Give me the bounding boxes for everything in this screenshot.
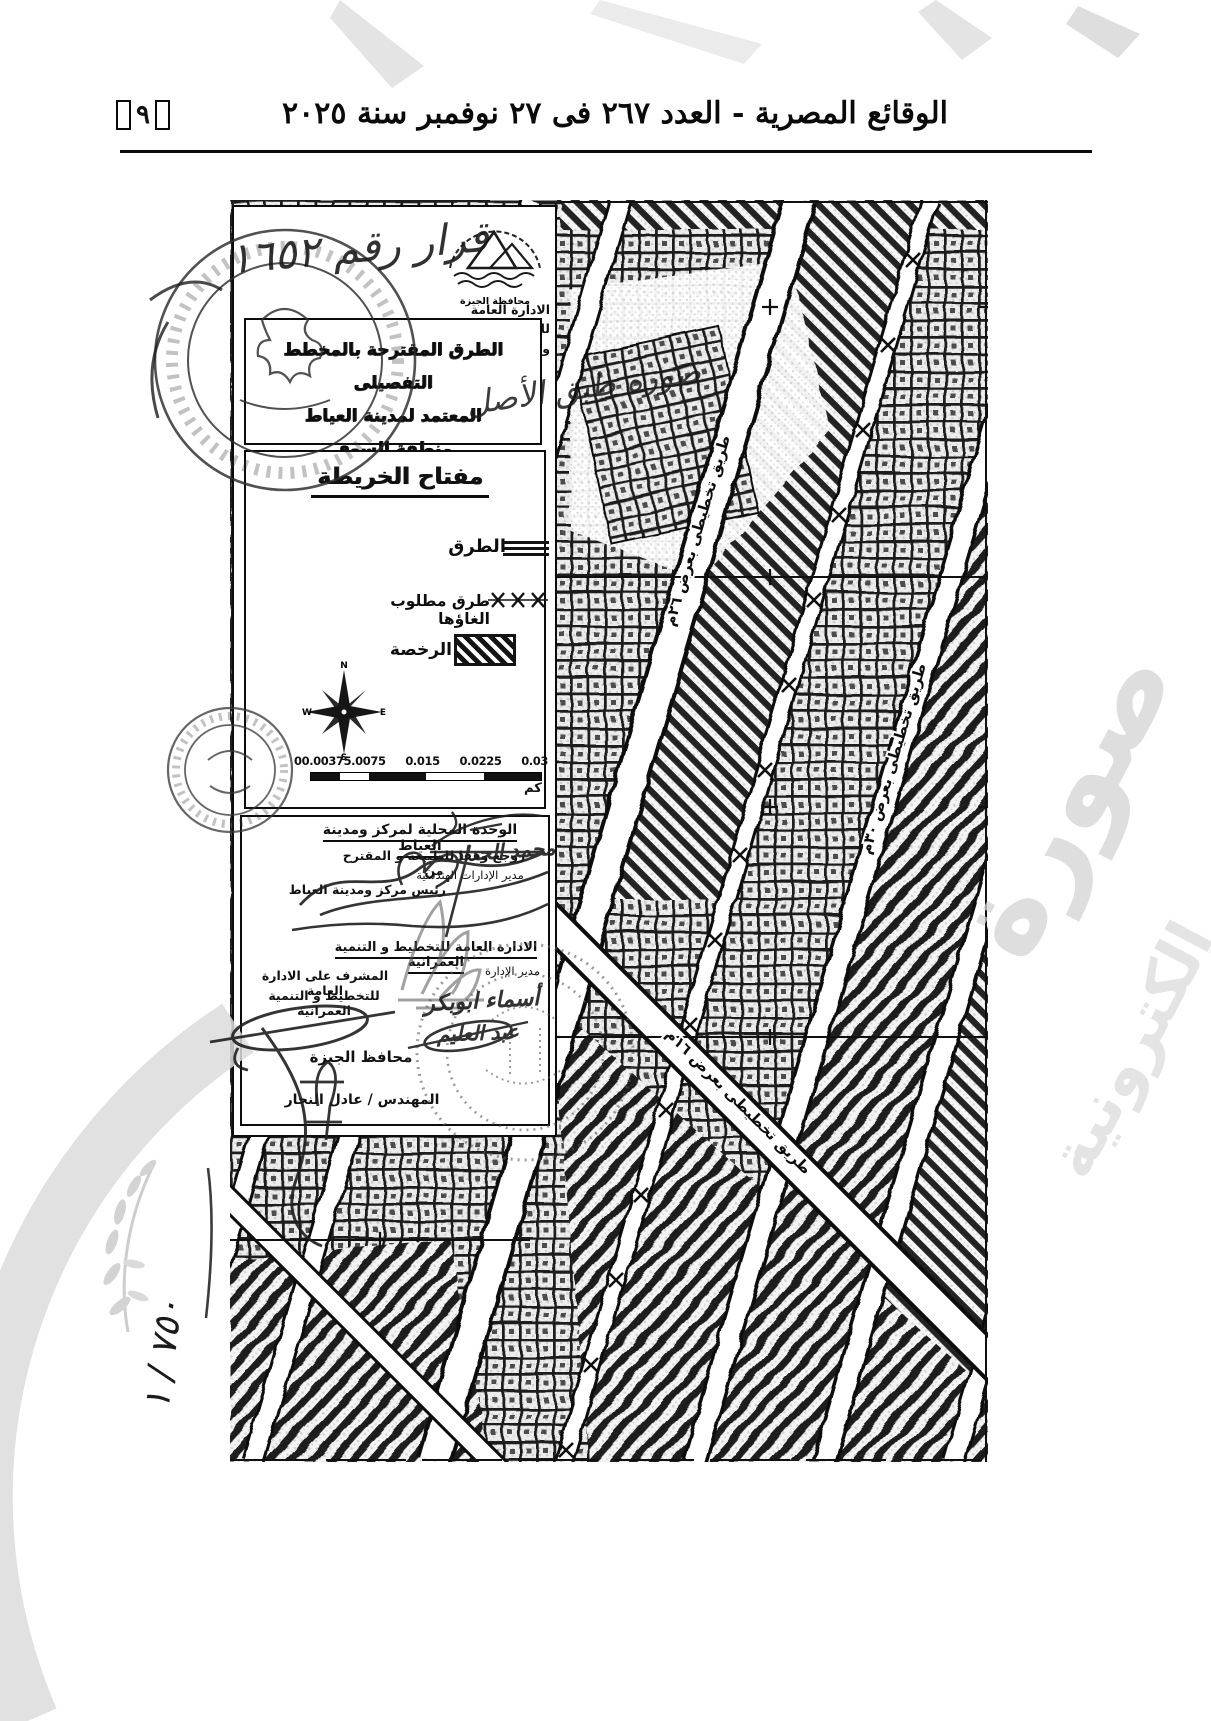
governor-name: المهندس / عادل النجار (278, 1092, 446, 1108)
ratio-handwriting: ٧٥٠ / ١ (137, 1168, 212, 1413)
watermark-arc (0, 1028, 238, 1720)
scale-label: 0.03 (521, 754, 548, 768)
tofu-box (116, 100, 131, 130)
scale-labels: 00.00375.0075 0.015 0.0225 0.03 (294, 754, 548, 768)
supervisor-line-2: للتخطيط و التنمية العمرانية (246, 988, 402, 1018)
plan-title-line-1: الطرق المقترحة بالمخطط التفصيلى (246, 334, 540, 400)
laurel-branch-icon (100, 1157, 158, 1332)
roads-symbol-icon (503, 538, 549, 559)
tofu-box (155, 100, 170, 130)
cancelled-roads-symbol-icon (486, 590, 550, 610)
svg-text:٧٥٠ / ١: ٧٥٠ / ١ (137, 1296, 191, 1413)
governor-title: محافظ الجيزة (296, 1048, 426, 1066)
map-key-title: مفتاح الخريطة (300, 464, 500, 490)
admin-director-title: مدير الإدارة (476, 964, 540, 978)
plan-title-box: الطرق المقترحة بالمخطط التفصيلى المعتمد … (244, 318, 542, 445)
scale-label: 0.015 (405, 754, 439, 768)
gazette-page: ٩ الوقائع المصرية - العدد ٢٦٧ فى ٢٧ نوفم… (0, 0, 1211, 1721)
compass-rose-icon: N E S W (300, 660, 388, 760)
key-license-label: الرخصة (402, 640, 452, 660)
scale-label: 00.00375.0075 (294, 754, 386, 768)
compass-e: E (380, 708, 386, 718)
head-of-city-title: رئيس مركز ومدينة العياط (286, 882, 446, 897)
watermark-text-fragment: إلكترونية (1034, 910, 1211, 1190)
license-symbol-icon (454, 634, 516, 666)
key-cancelled-label: طرق مطلوب الغاؤها (338, 592, 490, 628)
pen-stroke (150, 282, 222, 418)
key-roads-label: الطرق (452, 536, 506, 557)
gazette-header-title: الوقائع المصرية - العدد ٢٦٧ فى ٢٧ نوفمبر… (250, 96, 980, 131)
scale-label: 0.0225 (459, 754, 501, 768)
scale-bar (310, 772, 542, 781)
giza-governorate-logo-icon: محافظة الجيزة (438, 210, 552, 310)
page-number: ٩ (116, 100, 170, 130)
eng-director-title: مدير الإدارات الهندسية (408, 868, 532, 882)
plan-title-line-2: المعتمد لمدينة العياط (246, 400, 540, 433)
compass-n: N (340, 661, 348, 671)
scan-ghost-shapes (330, 0, 1140, 88)
page-number-value: ٩ (136, 100, 150, 130)
header-rule (120, 150, 1092, 153)
scale-unit: كم (524, 781, 542, 796)
compass-w: W (302, 708, 312, 718)
